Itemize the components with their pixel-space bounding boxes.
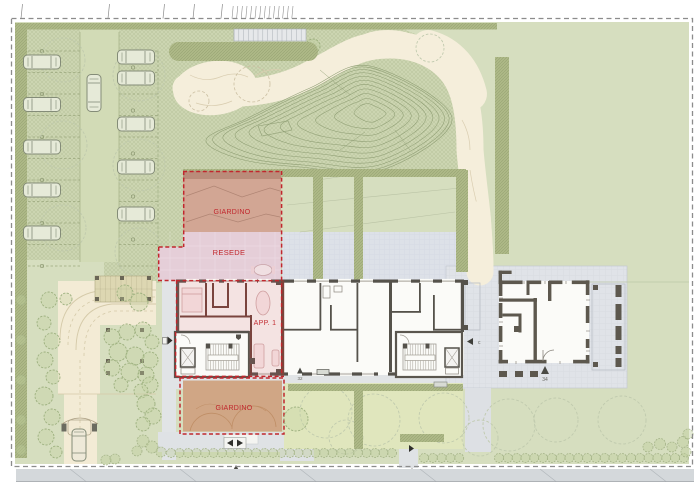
svg-text:GIARDINO: GIARDINO [213, 209, 250, 216]
svg-text:GIARDINO: GIARDINO [215, 405, 252, 412]
svg-text:32: 32 [297, 376, 303, 381]
svg-text:RESEDE: RESEDE [213, 248, 246, 257]
svg-text:34: 34 [542, 377, 548, 383]
